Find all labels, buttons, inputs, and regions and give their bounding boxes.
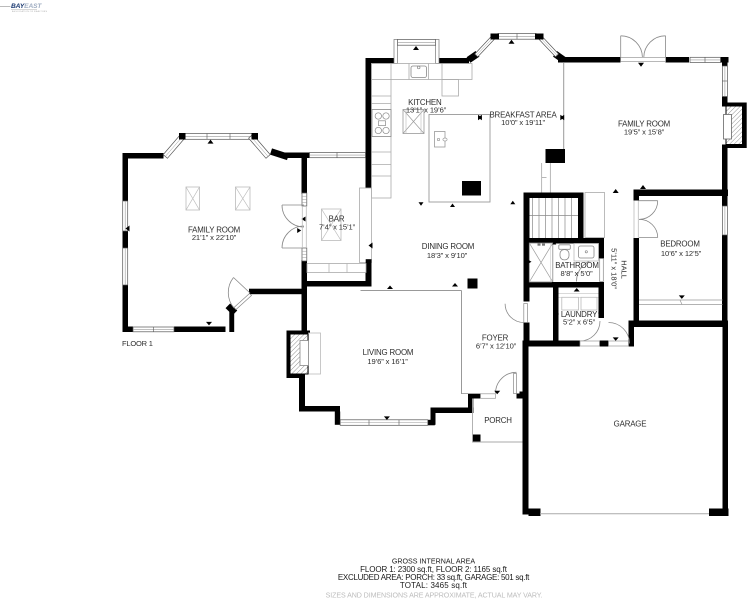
svg-text:6’7” x 12’10”: 6’7” x 12’10” — [476, 341, 517, 350]
svg-text:DINING ROOM: DINING ROOM — [422, 242, 474, 251]
svg-text:SIZES AND DIMENSIONS ARE APPRO: SIZES AND DIMENSIONS ARE APPROXIMATE, AC… — [326, 592, 543, 600]
svg-text:BAYEAST: BAYEAST — [11, 3, 42, 10]
svg-text:5’11” x 18’0”: 5’11” x 18’0” — [610, 248, 619, 289]
svg-text:BEDROOM: BEDROOM — [660, 240, 700, 249]
svg-text:TOTAL: 3465 sq.ft: TOTAL: 3465 sq.ft — [400, 581, 468, 590]
svg-text:21’1” x 22’10”: 21’1” x 22’10” — [192, 233, 237, 242]
svg-text:10’6” x 12’5”: 10’6” x 12’5” — [661, 249, 702, 258]
svg-text:13’1” x 19’6”: 13’1” x 19’6” — [406, 105, 447, 114]
svg-text:HALL: HALL — [620, 260, 629, 279]
svg-text:ASSOCIATION OF REALTORS: ASSOCIATION OF REALTORS — [12, 10, 48, 13]
svg-text:19’5” x 15’8”: 19’5” x 15’8” — [624, 127, 665, 136]
svg-text:LIVING ROOM: LIVING ROOM — [363, 348, 414, 357]
svg-text:PORCH: PORCH — [484, 416, 512, 425]
svg-text:5’2” x 6’5”: 5’2” x 6’5” — [563, 318, 596, 327]
svg-text:FLOOR 1: FLOOR 1 — [122, 339, 153, 348]
svg-text:8’8” x 5’0”: 8’8” x 5’0” — [560, 269, 593, 278]
svg-text:10’0” x 19’11”: 10’0” x 19’11” — [501, 118, 545, 127]
svg-text:19’6” x 16’1”: 19’6” x 16’1” — [367, 357, 408, 366]
svg-text:GARAGE: GARAGE — [614, 420, 647, 429]
svg-text:7’4” x 15’1”: 7’4” x 15’1” — [319, 223, 356, 232]
svg-text:18’3” x 9’10”: 18’3” x 9’10” — [427, 251, 468, 260]
